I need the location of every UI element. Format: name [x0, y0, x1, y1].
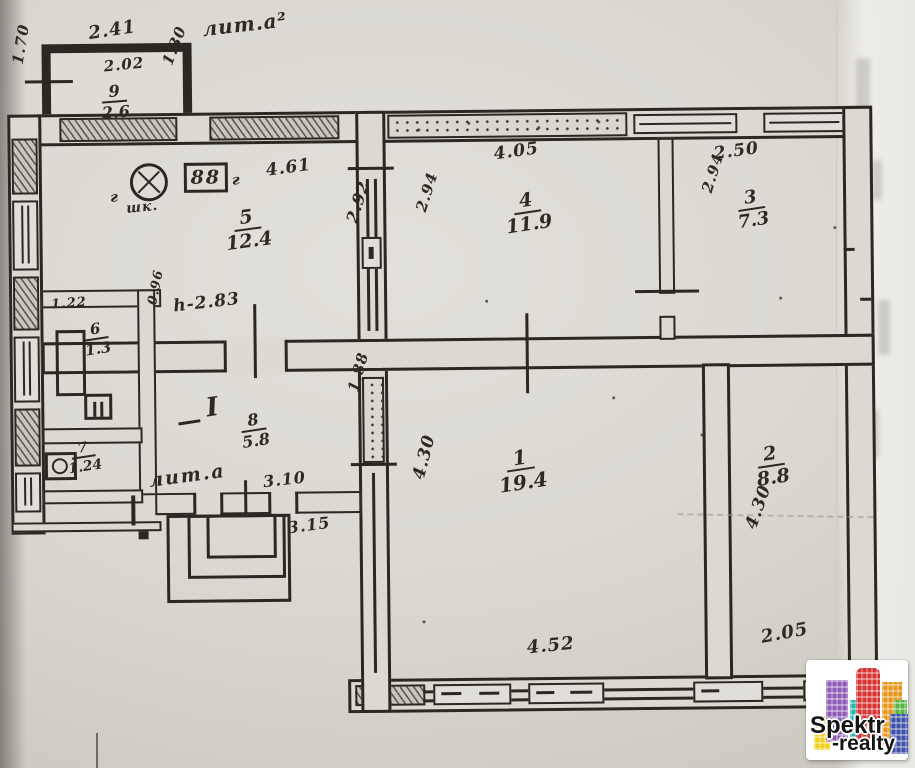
room-6-label: 6 1.3 — [81, 318, 112, 358]
stove-symbol — [130, 163, 168, 201]
agency-logo: Spektr -realty — [806, 660, 908, 760]
wall-top-hatch-segment — [209, 115, 339, 140]
room-area: 12.4 — [225, 229, 273, 254]
wall-room4-room3-stub — [659, 316, 675, 340]
room-area: 8.8 — [756, 466, 792, 490]
logo-text-line2: -realty — [832, 732, 895, 756]
door-jamb — [295, 492, 298, 514]
scanned-floorplan-page: 88 2.41 лит.а² 2.02 1.30 1.70 г шк. г 4.… — [0, 0, 915, 768]
dim-room6-top: 1.22 — [51, 295, 88, 313]
door-opening — [194, 490, 220, 518]
dim-annex-top-outer: 2.41 — [87, 16, 137, 44]
room-4-label: 4 11.9 — [501, 186, 553, 237]
dim-room1-bottom: 4.52 — [526, 633, 576, 659]
dim-room3-top: 2.50 — [712, 138, 760, 164]
wall-stub — [131, 495, 135, 525]
dim-room2-bottom: 2.05 — [759, 618, 810, 647]
window-symbol — [633, 113, 737, 134]
room-8-label: 8 5.8 — [238, 408, 271, 451]
room-2-label: 2 8.8 — [752, 441, 791, 490]
room-area: 5.8 — [241, 431, 271, 451]
room-7-label: 7 1.24 — [64, 438, 103, 477]
toilet-symbol — [84, 394, 112, 420]
wall-middle-horizontal — [42, 334, 875, 375]
door-jamb — [224, 340, 227, 372]
roman-dash — [178, 419, 200, 425]
door-opening — [269, 489, 295, 517]
dim-porch-bottom: 3.15 — [286, 513, 331, 538]
window-symbol — [12, 200, 39, 270]
room-area: 19.4 — [498, 469, 549, 496]
bathtub-symbol — [55, 330, 86, 396]
wall-room1-room2 — [702, 363, 733, 679]
wall-left-hatch-segment — [13, 276, 40, 330]
gas-stove-symbol: 88 — [184, 162, 228, 192]
porch-step-inner — [206, 514, 276, 559]
door-tick — [525, 313, 529, 393]
wall-right-outer — [842, 106, 878, 708]
dimension-tick — [25, 80, 73, 84]
dim-room5-top: 4.61 — [265, 155, 313, 181]
window-symbol — [763, 112, 845, 133]
dim-room4-left: 2.94 — [412, 170, 441, 214]
window-symbol — [15, 472, 41, 512]
room-3-label: 3 7.3 — [733, 185, 770, 232]
dim-room1-left: 4.30 — [409, 433, 440, 482]
wall-bottom-outer — [348, 674, 878, 714]
door-tick — [351, 463, 397, 466]
dim-room4-top: 4.05 — [492, 138, 540, 164]
label-height-note: h-2.83 — [172, 289, 241, 317]
wall-hall-bottom — [155, 491, 361, 515]
dim-room6-right: 0.96 — [145, 268, 167, 306]
door-jamb — [285, 340, 288, 372]
window-symbol — [528, 683, 604, 705]
gas-stove-burners: 88 — [191, 166, 222, 188]
dimension-arrow — [139, 531, 149, 539]
label-litera-a: лит.а — [148, 460, 227, 492]
door-tick — [253, 304, 257, 378]
label-gas-left: г — [109, 189, 119, 206]
room-area: 7.3 — [737, 210, 771, 232]
wall-room6-right — [137, 289, 157, 495]
dim-annex-left: 1.70 — [9, 23, 33, 66]
window-symbol — [433, 683, 511, 705]
room-1-label: 1 19.4 — [494, 442, 549, 496]
label-gas-right: г — [231, 172, 241, 189]
window-symbol — [693, 681, 763, 703]
label-litera-a2: лит.а² — [201, 7, 288, 41]
room-9-label: 9 2.6 — [100, 81, 131, 122]
wall-room7-bottom — [43, 489, 143, 504]
wall-tick — [860, 298, 871, 301]
door-jamb — [193, 493, 196, 515]
door-tick — [348, 167, 394, 170]
hall-roman-numeral: I — [204, 392, 222, 424]
room-area: 2.6 — [101, 103, 130, 121]
window-symbol — [14, 336, 41, 402]
wall-tick — [844, 248, 855, 251]
vent-symbol — [361, 237, 381, 269]
wall-top-dotted-segment — [387, 112, 627, 139]
floorplan-drawing: 88 2.41 лит.а² 2.02 1.30 1.70 г шк. г 4.… — [0, 0, 915, 768]
label-cupboard: шк. — [125, 198, 159, 217]
room-area: 1.24 — [67, 457, 103, 476]
room-area: 1.3 — [84, 340, 112, 359]
room-number: 9 — [101, 83, 128, 104]
door-tick — [635, 289, 699, 293]
room-area: 11.9 — [505, 212, 554, 238]
door-tick — [244, 480, 247, 516]
wall-left-hatch-segment — [11, 138, 38, 194]
door-jamb — [220, 492, 223, 514]
dim-hall-bottom: 3.10 — [262, 467, 307, 491]
wall-dotted-segment — [362, 377, 385, 463]
room-5-label: 5 12.4 — [222, 203, 274, 254]
door-jamb — [268, 492, 271, 514]
wall-room4-room3 — [657, 138, 675, 294]
wall-left-hatch-segment — [14, 408, 41, 466]
